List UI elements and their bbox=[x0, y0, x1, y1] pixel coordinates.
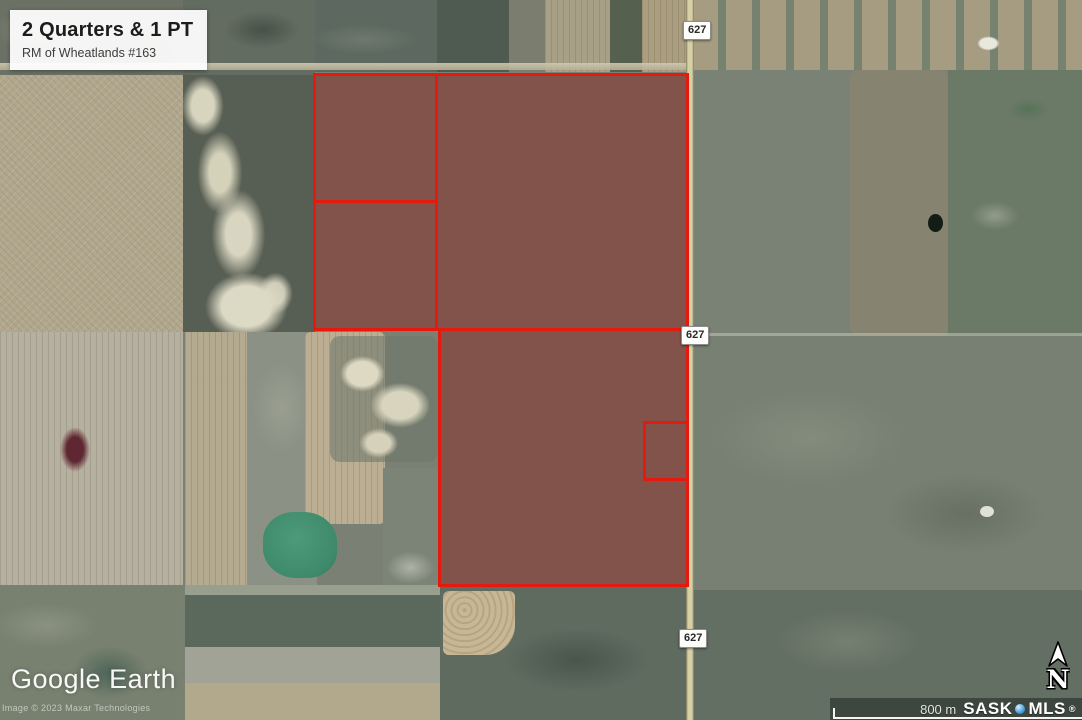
mls-dot-icon bbox=[1015, 704, 1025, 714]
north-compass: N bbox=[1040, 641, 1076, 692]
field-patch bbox=[692, 336, 1082, 590]
road-marker-627-bottom: 627 bbox=[679, 629, 707, 648]
north-label: N bbox=[1040, 668, 1076, 692]
sask-mls-logo: SASK MLS ® bbox=[963, 699, 1076, 719]
field-patch bbox=[185, 585, 440, 720]
listing-title-card: 2 Quarters & 1 PT RM of Wheatlands #163 bbox=[10, 10, 207, 70]
listing-subtitle: RM of Wheatlands #163 bbox=[22, 46, 193, 60]
brand-sask: SASK bbox=[963, 699, 1012, 719]
field-patch bbox=[440, 587, 689, 720]
field-patch bbox=[0, 585, 183, 720]
field-patch bbox=[642, 0, 688, 72]
saline-flat bbox=[183, 75, 315, 332]
plowed-field bbox=[0, 332, 183, 585]
scale-distance: 800 m bbox=[920, 702, 956, 717]
white-spot bbox=[980, 506, 994, 517]
field-patch bbox=[315, 0, 437, 72]
brand-mls: MLS bbox=[1028, 699, 1065, 719]
scale-brand-bar: 800 m SASK MLS ® bbox=[830, 698, 1082, 720]
registered-mark: ® bbox=[1069, 704, 1076, 714]
google-earth-logo: Google Earth bbox=[11, 664, 176, 695]
field-patch bbox=[850, 70, 948, 335]
parcel-divider-line bbox=[313, 200, 438, 203]
field-patch bbox=[383, 468, 438, 585]
field-patch bbox=[948, 70, 1082, 335]
pond bbox=[263, 512, 337, 578]
field-patch bbox=[610, 0, 642, 72]
plowed-field bbox=[185, 332, 247, 585]
plowed-field bbox=[0, 75, 183, 332]
dugout bbox=[928, 214, 943, 232]
road-marker-627-middle: 627 bbox=[681, 326, 709, 345]
map-canvas[interactable]: 627 627 627 2 Quarters & 1 PT RM of Whea… bbox=[0, 0, 1082, 720]
field-patch bbox=[437, 0, 509, 72]
parcel-exclusion-yard bbox=[643, 421, 689, 481]
plowed-field bbox=[443, 591, 515, 655]
strip-fields bbox=[692, 0, 1082, 70]
north-arrow-icon bbox=[1046, 641, 1070, 668]
parcel-ne-quarter bbox=[435, 73, 689, 331]
field-patch bbox=[509, 0, 545, 72]
road-marker-627-top: 627 bbox=[683, 21, 711, 40]
imagery-copyright: Image © 2023 Maxar Technologies bbox=[2, 703, 150, 713]
pond bbox=[60, 427, 90, 472]
listing-title: 2 Quarters & 1 PT bbox=[22, 19, 193, 42]
field-patch bbox=[545, 0, 610, 72]
saline-flat bbox=[330, 336, 438, 462]
